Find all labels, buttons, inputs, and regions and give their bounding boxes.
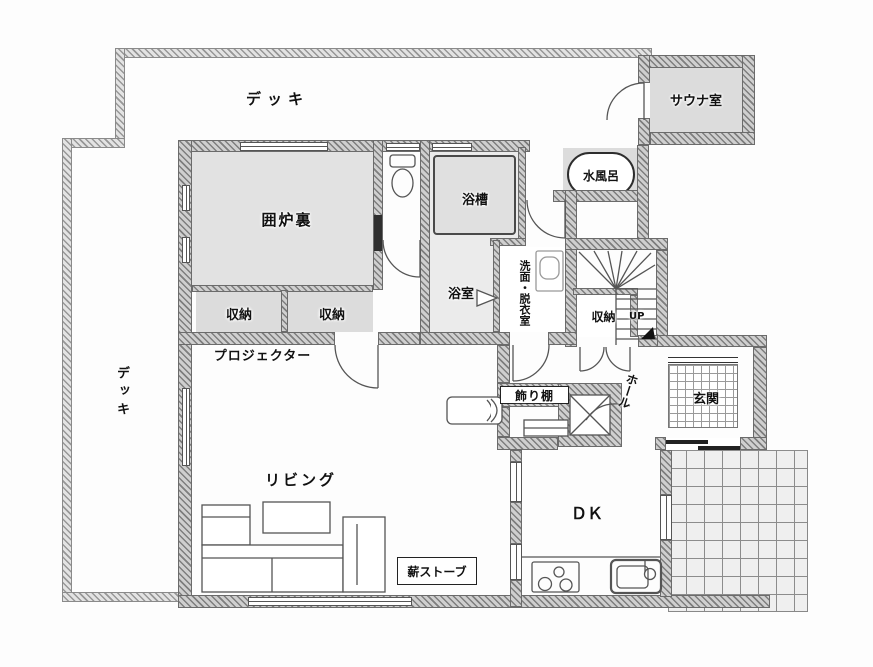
- door-arc-sauna: [607, 83, 644, 120]
- stairs: [579, 251, 656, 345]
- tv-board: [447, 397, 502, 424]
- label-bathroom: 浴室: [433, 283, 489, 302]
- kitchen: [522, 557, 661, 593]
- door-arc-living: [335, 345, 378, 388]
- label-deck-top: デッキ: [225, 88, 330, 109]
- washbasin: [536, 251, 563, 291]
- label-sauna: サウナ室: [650, 90, 742, 109]
- label-closet-a: 収納: [203, 304, 275, 323]
- label-deck-left: デッキ: [112, 348, 131, 438]
- label-closet-stairs: 収納: [578, 308, 629, 325]
- toilet-fixture: [390, 155, 415, 197]
- door-arcs-stair-closet: [580, 347, 630, 371]
- label-display-shelf: 飾り棚: [500, 386, 569, 404]
- sofa: [202, 502, 385, 592]
- door-arc-toilet: [383, 240, 420, 277]
- label-dk: ＤＫ: [557, 500, 617, 524]
- door-arc-washroom-north: [527, 200, 565, 238]
- label-irori: 囲炉裏: [233, 209, 341, 230]
- label-washroom: 洗面・脱衣室: [516, 250, 532, 335]
- label-projector: プロジェクター: [195, 345, 330, 364]
- label-cold-bath: 水風呂: [568, 167, 634, 184]
- floor-plan: デッキ デッキ サウナ室 水風呂 囲炉裏 浴槽 浴室 洗面・脱衣室 収納 収納 …: [0, 0, 873, 667]
- label-stairs-up: UP: [629, 311, 659, 322]
- label-closet-b: 収納: [296, 304, 368, 323]
- label-living: リビング: [246, 469, 356, 490]
- coffee-table: [263, 502, 330, 533]
- door-arc-washroom-south: [513, 345, 549, 381]
- label-bathtub: 浴槽: [445, 189, 505, 208]
- wood-stove: 薪ストーブ: [397, 557, 477, 585]
- display-shelf-counter: [524, 420, 568, 436]
- label-entrance: 玄関: [676, 388, 736, 407]
